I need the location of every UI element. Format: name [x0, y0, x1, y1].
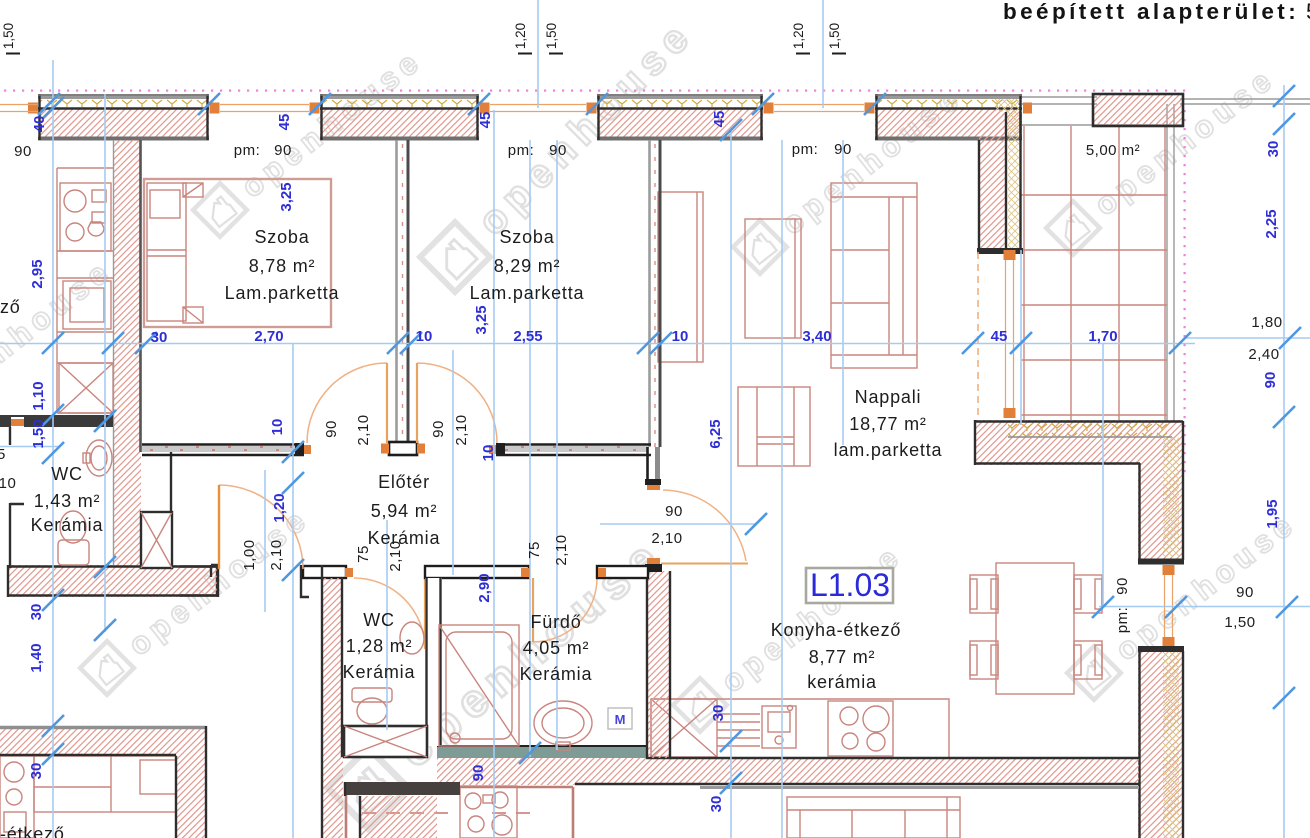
svg-text:5: 5: [1306, 0, 1310, 24]
svg-text:90: 90: [834, 141, 852, 158]
svg-text:10: 10: [480, 445, 497, 462]
svg-text:3,25: 3,25: [278, 182, 295, 211]
svg-text:1,95: 1,95: [1264, 499, 1281, 528]
svg-text:pm:: pm:: [1114, 607, 1131, 634]
svg-text:pm:: pm:: [234, 142, 261, 159]
svg-text:5,00 m²: 5,00 m²: [1086, 142, 1140, 159]
svg-text:40: 40: [31, 116, 48, 133]
svg-text:90: 90: [470, 765, 487, 782]
svg-text:90: 90: [14, 143, 32, 160]
svg-text:1,50: 1,50: [827, 23, 842, 49]
svg-text:1,20: 1,20: [791, 23, 806, 49]
svg-text:30: 30: [710, 705, 727, 722]
svg-text:2,55: 2,55: [513, 328, 542, 345]
svg-text:2,95: 2,95: [29, 259, 46, 288]
svg-text:Konyha-étkező: Konyha-étkező: [771, 620, 901, 640]
svg-text:8,78 m²: 8,78 m²: [249, 256, 316, 276]
svg-text:Előtér: Előtér: [378, 472, 430, 492]
svg-text:3,25: 3,25: [473, 305, 490, 334]
svg-text:45: 45: [711, 111, 728, 128]
svg-text:ző: ző: [0, 297, 21, 317]
svg-text:1,00: 1,00: [241, 539, 258, 570]
svg-text:30: 30: [151, 329, 168, 346]
svg-text:1,28 m²: 1,28 m²: [346, 636, 413, 656]
svg-text:1,50: 1,50: [30, 419, 47, 448]
svg-text:Kerámia: Kerámia: [368, 528, 441, 548]
svg-text:M: M: [615, 712, 626, 727]
svg-text:pm:: pm:: [792, 141, 819, 158]
svg-text:6,25: 6,25: [707, 419, 724, 448]
svg-text:2,70: 2,70: [254, 328, 283, 345]
svg-text:2,10: 2,10: [453, 414, 470, 445]
svg-text:Lam.parketta: Lam.parketta: [225, 283, 340, 303]
svg-text:45: 45: [477, 112, 494, 129]
svg-text:90: 90: [665, 503, 683, 520]
svg-text:45: 45: [276, 114, 293, 131]
svg-text:75: 75: [526, 541, 543, 559]
svg-text:2,25: 2,25: [1263, 209, 1280, 238]
svg-text:2,40: 2,40: [1248, 346, 1279, 363]
svg-text:beépített alapterület:: beépített alapterület:: [1003, 0, 1299, 24]
svg-text:1,43 m²: 1,43 m²: [34, 491, 101, 511]
svg-text:45: 45: [991, 328, 1008, 345]
svg-text:WC: WC: [363, 610, 395, 630]
svg-text:1,20: 1,20: [513, 23, 528, 49]
svg-text:8,29 m²: 8,29 m²: [494, 256, 561, 276]
svg-text:30: 30: [1265, 141, 1282, 158]
svg-text:Lam.parketta: Lam.parketta: [470, 283, 585, 303]
svg-text:kerámia: kerámia: [807, 672, 877, 692]
svg-text:90: 90: [274, 142, 292, 159]
svg-text:30: 30: [708, 796, 725, 813]
svg-text:2,10: 2,10: [651, 530, 682, 547]
svg-text:lam.parketta: lam.parketta: [834, 440, 943, 460]
svg-text:3,40: 3,40: [802, 328, 831, 345]
svg-text:2,10: 2,10: [553, 534, 570, 565]
svg-text:L1.03: L1.03: [810, 567, 890, 603]
svg-text:1,50: 1,50: [1, 23, 16, 49]
svg-text:2,90: 2,90: [476, 573, 493, 602]
svg-text:1,20: 1,20: [271, 493, 288, 522]
svg-text:1,80: 1,80: [1251, 314, 1282, 331]
svg-text:1,70: 1,70: [1088, 328, 1117, 345]
svg-text:5,94 m²: 5,94 m²: [371, 501, 438, 521]
svg-text:-étkező: -étkező: [0, 824, 65, 838]
svg-text:Kerámia: Kerámia: [343, 662, 416, 682]
svg-text:2,10: 2,10: [355, 414, 372, 445]
svg-text:Szoba: Szoba: [254, 227, 309, 247]
svg-text:Kerámia: Kerámia: [520, 664, 593, 684]
svg-text:2,10: 2,10: [268, 539, 285, 570]
svg-text:1,50: 1,50: [1224, 614, 1255, 631]
svg-text:Fürdő: Fürdő: [530, 612, 581, 632]
svg-text:90: 90: [1114, 577, 1131, 595]
svg-text:8,77 m²: 8,77 m²: [809, 647, 876, 667]
svg-text:Szoba: Szoba: [499, 227, 554, 247]
svg-text:5: 5: [0, 446, 6, 463]
svg-text:1,10: 1,10: [30, 381, 47, 410]
svg-text:90: 90: [323, 420, 340, 438]
svg-text:10: 10: [269, 419, 286, 436]
svg-text:WC: WC: [51, 464, 83, 484]
svg-text:,10: ,10: [0, 475, 16, 492]
svg-text:Nappali: Nappali: [855, 387, 922, 407]
svg-text:90: 90: [549, 142, 567, 159]
svg-text:4,05 m²: 4,05 m²: [523, 638, 590, 658]
svg-text:10: 10: [672, 328, 689, 345]
svg-text:30: 30: [28, 763, 45, 780]
svg-text:1,40: 1,40: [28, 643, 45, 672]
svg-text:pm:: pm:: [508, 142, 535, 159]
svg-text:Kerámia: Kerámia: [31, 515, 104, 535]
svg-text:90: 90: [430, 420, 447, 438]
svg-text:90: 90: [1236, 584, 1254, 601]
svg-text:18,77 m²: 18,77 m²: [849, 414, 926, 434]
svg-text:30: 30: [28, 604, 45, 621]
svg-text:90: 90: [1262, 372, 1279, 389]
svg-text:10: 10: [416, 328, 433, 345]
svg-text:1,50: 1,50: [544, 23, 559, 49]
